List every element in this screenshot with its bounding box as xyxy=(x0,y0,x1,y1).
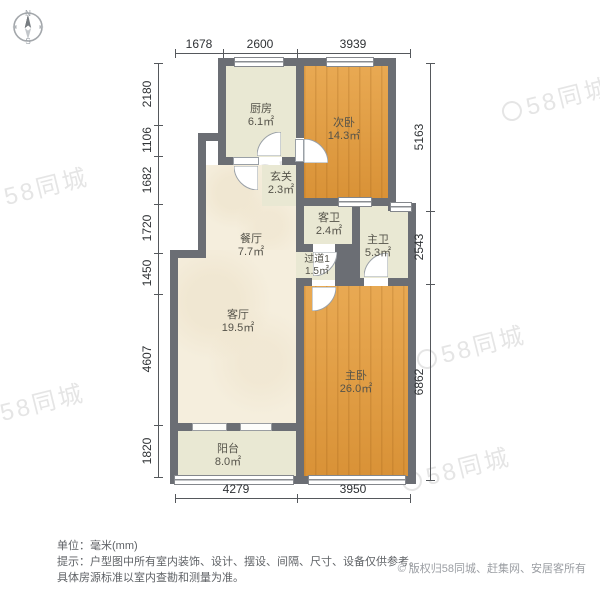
kitchen-door-arc xyxy=(257,132,281,156)
dim-left-7: 1820 xyxy=(140,438,154,465)
room-name: 主卫 xyxy=(365,234,391,247)
dim-right-2: 2543 xyxy=(412,234,426,261)
tip-line-2: 具体房源标准以室内查勘和测量为准。 xyxy=(57,569,244,585)
tick xyxy=(154,294,163,295)
watermark: 58同城 xyxy=(0,373,88,434)
room-label-balcony: 阳台 8.0㎡ xyxy=(215,443,241,469)
dim-bottom-1: 4279 xyxy=(223,482,250,496)
room-name: 阳台 xyxy=(215,443,241,456)
tick xyxy=(154,125,163,126)
room-label-master-bath: 主卫 5.3㎡ xyxy=(365,234,391,260)
tick xyxy=(154,204,163,205)
compass-icon: N S xyxy=(8,6,48,46)
window xyxy=(338,197,372,207)
tick xyxy=(410,49,411,58)
dim-left-4: 1720 xyxy=(140,215,154,242)
room-label-master-bedroom: 主卧 26.0㎡ xyxy=(340,370,372,396)
wall xyxy=(296,244,313,252)
entry-door-arc xyxy=(234,166,258,190)
master-bedroom-door-arc xyxy=(312,287,336,311)
wall xyxy=(218,58,226,165)
room-area: 1.5㎡ xyxy=(304,266,330,278)
wall xyxy=(227,423,240,431)
tick xyxy=(426,284,435,285)
room-area: 8.0㎡ xyxy=(215,456,241,469)
tick xyxy=(154,63,163,64)
room-living-floor xyxy=(178,250,296,423)
tick xyxy=(154,156,163,157)
room-name: 玄关 xyxy=(268,171,294,184)
dim-right-1: 5163 xyxy=(412,124,426,151)
room-area: 7.7㎡ xyxy=(238,246,264,259)
dim-left-5: 1450 xyxy=(140,260,154,287)
unit-note: 单位：毫米(mm) xyxy=(57,537,138,553)
wall xyxy=(296,286,304,476)
room-name: 餐厅 xyxy=(238,233,264,246)
dim-left-6: 4607 xyxy=(140,346,154,373)
room-label-dining: 餐厅 7.7㎡ xyxy=(238,233,264,259)
wall xyxy=(170,250,178,484)
tick xyxy=(175,494,176,503)
room-name: 客厅 xyxy=(222,309,254,322)
dim-left-1: 2180 xyxy=(140,81,154,108)
wall xyxy=(296,278,312,286)
dim-top-1: 1678 xyxy=(186,37,213,51)
tick xyxy=(297,49,298,58)
room-label-kitchen: 厨房 6.1㎡ xyxy=(248,103,274,129)
wall xyxy=(296,58,304,138)
tick xyxy=(410,494,411,503)
wall xyxy=(336,278,364,286)
floorplan-page: N S 58同城 58同城 58同城 58同城 58同城 58同城 xyxy=(0,0,600,600)
dim-top-2: 2600 xyxy=(247,37,274,51)
room-area: 14.3㎡ xyxy=(328,130,360,143)
window xyxy=(326,57,374,67)
copyright-note: © 版权归58同城、赶集网、安居客所有 xyxy=(398,560,586,576)
dimension-line-right xyxy=(430,63,431,480)
room-name: 过道1 xyxy=(304,254,330,266)
window xyxy=(234,57,284,67)
room-label-bedroom2: 次卧 14.3㎡ xyxy=(328,117,360,143)
room-area: 2.3㎡ xyxy=(268,184,294,197)
watermark: 58同城 xyxy=(497,67,600,128)
wall xyxy=(272,423,304,431)
wall xyxy=(388,58,396,211)
room-area: 2.4㎡ xyxy=(316,225,342,238)
tick xyxy=(297,494,298,503)
room-name: 厨房 xyxy=(248,103,274,116)
dim-bottom-2: 3950 xyxy=(340,482,367,496)
tick xyxy=(175,49,176,58)
copyright-icon: © xyxy=(398,563,406,575)
room-area: 6.1㎡ xyxy=(248,116,274,129)
room-area: 19.5㎡ xyxy=(222,322,254,335)
tick xyxy=(426,63,435,64)
entry-door-leaf xyxy=(233,157,259,165)
bedroom2-door-arc xyxy=(304,139,328,163)
wall xyxy=(218,157,233,165)
tick xyxy=(426,211,435,212)
room-name: 次卧 xyxy=(328,117,360,130)
tick xyxy=(154,425,163,426)
balcony-opening xyxy=(192,423,227,431)
dim-left-3: 1682 xyxy=(140,167,154,194)
balcony-opening xyxy=(240,423,272,431)
bedroom2-door-leaf xyxy=(295,139,304,162)
room-name: 客卫 xyxy=(316,212,342,225)
copyright-text: 版权归58同城、赶集网、安居客所有 xyxy=(409,563,586,575)
wall xyxy=(178,423,192,431)
room-area: 5.3㎡ xyxy=(365,247,391,260)
dim-top-3: 3939 xyxy=(340,37,367,51)
dim-right-3: 6862 xyxy=(412,369,426,396)
tick xyxy=(426,480,435,481)
wall xyxy=(198,133,206,258)
window xyxy=(390,202,412,212)
room-label-living: 客厅 19.5㎡ xyxy=(222,309,254,335)
room-area: 26.0㎡ xyxy=(340,383,372,396)
wall xyxy=(388,278,416,286)
room-label-guest-bath: 客卫 2.4㎡ xyxy=(316,212,342,238)
watermark: 58同城 xyxy=(0,157,92,218)
tick xyxy=(223,49,224,58)
dimension-line-top xyxy=(175,53,410,54)
tip-line-1: 提示：户型图中所有室内装饰、设计、摆设、间隔、尺寸、设备仅供参考。 xyxy=(57,553,420,569)
tick xyxy=(154,253,163,254)
room-name: 主卧 xyxy=(340,370,372,383)
room-label-hallway: 过道1 1.5㎡ xyxy=(304,254,330,278)
room-label-entry: 玄关 2.3㎡ xyxy=(268,171,294,197)
dimension-line-bottom xyxy=(175,498,410,499)
dim-left-2: 1106 xyxy=(140,127,154,153)
tick xyxy=(154,477,163,478)
